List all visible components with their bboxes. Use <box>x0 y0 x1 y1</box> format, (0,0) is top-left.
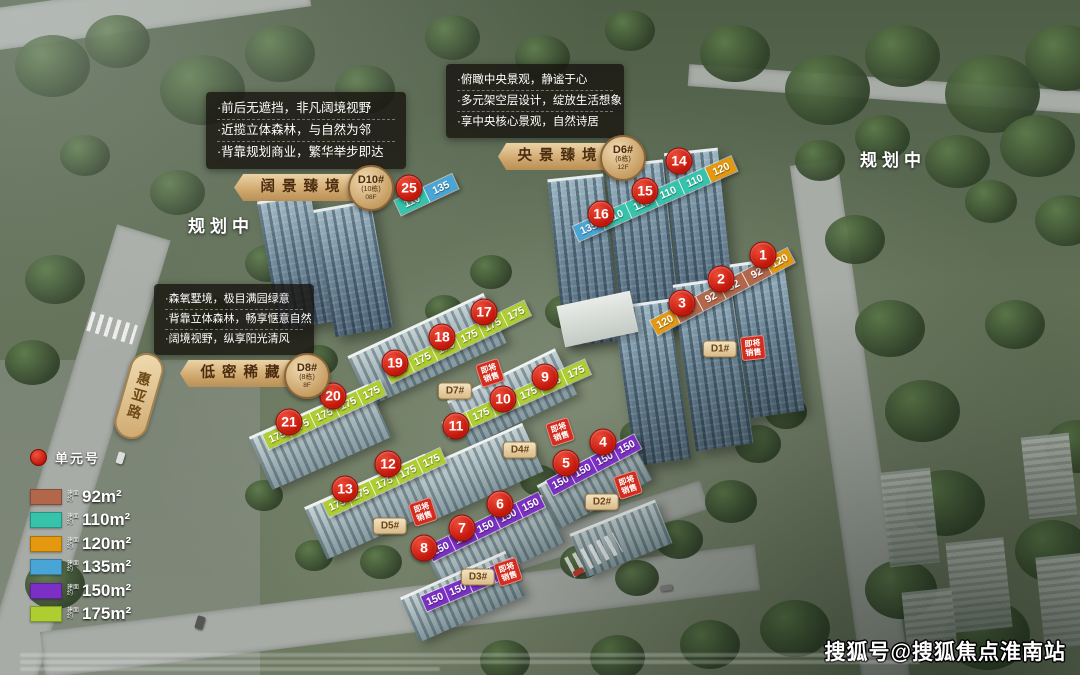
coming-soon-tag: 即将销售 <box>475 358 505 388</box>
info-card-bullet-list: ·森氧墅境，极目满园绿意 ·背靠立体森林，畅享惬意自然 ·阔境视野，纵享阳光清风 <box>154 284 314 355</box>
area-tile-175: 175 <box>357 380 386 405</box>
badge-code: D8# <box>297 363 317 374</box>
area-tile-120: 120 <box>705 156 737 182</box>
info-card-bullet-list: ·俯瞰中央景观，静谧于心 ·多元架空层设计，绽放生活想象 ·享中央核心景观，自然… <box>446 64 624 138</box>
coming-soon-tag: 即将销售 <box>545 417 575 447</box>
disclaimer-line <box>20 653 880 657</box>
legend-item-120: 建面约120m² <box>30 532 131 556</box>
banner-label: 阔景臻境 <box>234 174 366 201</box>
bullet-line: ·前后无遮挡，非凡阔境视野 <box>217 98 395 119</box>
banner-group: 低密稀藏 D8# (8栋) 8F <box>180 360 300 387</box>
unit-number-badge-17: 17 <box>471 299 498 326</box>
legend-unit-marker: 单元号 <box>30 448 131 467</box>
badge-subtitle: (10栋) <box>361 186 380 194</box>
area-tile-135: 135 <box>424 174 459 202</box>
legend-area-label: 110m² <box>82 510 130 530</box>
legend-item-135: 建面约135m² <box>30 556 131 580</box>
unit-number-badge-11: 11 <box>443 413 470 440</box>
building-label-pill: D1# <box>703 341 737 358</box>
banner-label: 央景臻境 <box>498 143 616 170</box>
building-badge-d8: D8# (8栋) 8F <box>284 353 330 399</box>
coming-soon-tag: 即将销售 <box>408 497 438 527</box>
legend-unit-label: 单元号 <box>55 448 100 467</box>
bullet-line: ·多元架空层设计，绽放生活想象 <box>457 90 613 111</box>
area-tile-150: 150 <box>516 492 545 517</box>
area-tile-175: 175 <box>562 360 591 385</box>
unit-number-badge-21: 21 <box>276 409 303 436</box>
unit-number-badge-8: 8 <box>411 535 438 562</box>
legend: 单元号 建面约92m²建面约110m²建面约120m²建面约135m²建面约15… <box>30 448 131 626</box>
area-tile-175: 175 <box>501 301 530 326</box>
unit-number-badge-9: 9 <box>532 364 559 391</box>
legend-swatch <box>30 536 62 552</box>
unit-number-badge-3: 3 <box>669 290 696 317</box>
badge-code: D10# <box>358 175 384 186</box>
info-card-broad-view: ·前后无遮挡，非凡阔境视野 ·近揽立体森林，与自然为邻 ·背靠规划商业，繁华举步… <box>206 92 406 201</box>
bullet-line: ·阔境视野，纵享阳光清风 <box>165 329 303 349</box>
unit-number-badge-5: 5 <box>553 450 580 477</box>
bullet-line: ·森氧墅境，极目满园绿意 <box>165 290 303 309</box>
legend-area-label: 92m² <box>82 487 122 507</box>
badge-subtitle: (6栋) <box>615 156 631 164</box>
legend-prefix: 建面约 <box>67 538 79 550</box>
building-label-pill: D5# <box>373 518 407 535</box>
legend-swatch <box>30 512 62 528</box>
legend-prefix: 建面约 <box>67 585 79 597</box>
legend-swatch <box>30 559 62 575</box>
badge-code: D6# <box>613 145 633 156</box>
info-card-central-view: ·俯瞰中央景观，静谧于心 ·多元架空层设计，绽放生活想象 ·享中央核心景观，自然… <box>446 64 624 170</box>
unit-number-badge-4: 4 <box>590 429 617 456</box>
badge-floor: 08F <box>365 194 376 201</box>
info-card-bullet-list: ·前后无遮挡，非凡阔境视野 ·近揽立体森林，与自然为邻 ·背靠规划商业，繁华举步… <box>206 92 406 169</box>
legend-rows: 建面约92m²建面约110m²建面约120m²建面约135m²建面约150m²建… <box>30 485 131 626</box>
building-label-pill: D2# <box>585 494 619 511</box>
bullet-line: ·近揽立体森林，与自然为邻 <box>217 119 395 141</box>
legend-prefix: 建面约 <box>67 491 79 503</box>
legend-swatch <box>30 583 62 599</box>
info-card-low-density: ·森氧墅境，极目满园绿意 ·背靠立体森林，畅享惬意自然 ·阔境视野，纵享阳光清风… <box>154 284 314 387</box>
unit-number-dot-icon <box>30 449 47 466</box>
planning-label-left: 规划中 <box>188 212 254 237</box>
building-label-pill: D3# <box>461 569 495 586</box>
unit-number-badge-14: 14 <box>666 148 693 175</box>
unit-number-badge-1: 1 <box>750 242 777 269</box>
legend-area-label: 120m² <box>82 534 131 554</box>
coming-soon-tag: 即将销售 <box>740 335 766 361</box>
unit-number-badge-12: 12 <box>375 451 402 478</box>
unit-number-badge-2: 2 <box>708 266 735 293</box>
unit-number-badge-10: 10 <box>490 386 517 413</box>
legend-swatch <box>30 606 62 622</box>
building-label-pill: D7# <box>438 383 472 400</box>
coming-soon-tag: 即将销售 <box>493 557 523 587</box>
unit-number-badge-18: 18 <box>429 324 456 351</box>
banner-group: 央景臻境 D6# (6栋) 12F <box>498 143 616 170</box>
banner-group: 阔景臻境 D10# (10栋) 08F <box>234 174 366 201</box>
legend-item-175: 建面约175m² <box>30 603 131 627</box>
unit-number-badge-16: 16 <box>588 201 615 228</box>
badge-subtitle: (8栋) <box>299 374 315 382</box>
unit-number-badge-19: 19 <box>382 350 409 377</box>
unit-number-badge-13: 13 <box>332 476 359 503</box>
bullet-line: ·背靠规划商业，繁华举步即达 <box>217 141 395 163</box>
disclaimer-line <box>20 660 920 664</box>
legend-area-label: 150m² <box>82 581 131 601</box>
unit-number-badge-15: 15 <box>632 178 659 205</box>
banner-label: 低密稀藏 <box>180 360 300 387</box>
building-badge-d6: D6# (6栋) 12F <box>600 135 646 181</box>
badge-floor: 12F <box>617 164 628 171</box>
building-badge-d10: D10# (10栋) 08F <box>348 165 394 211</box>
legend-prefix: 建面约 <box>67 608 79 620</box>
legend-area-label: 175m² <box>82 604 131 624</box>
bullet-line: ·俯瞰中央景观，静谧于心 <box>457 70 613 90</box>
legend-prefix: 建面约 <box>67 514 79 526</box>
site-plan-rendering: ·前后无遮挡，非凡阔境视野 ·近揽立体森林，与自然为邻 ·背靠规划商业，繁华举步… <box>0 0 1080 675</box>
bullet-line: ·享中央核心景观，自然诗居 <box>457 111 613 132</box>
legend-item-150: 建面约150m² <box>30 579 131 603</box>
badge-floor: 8F <box>303 382 311 389</box>
unit-number-badge-7: 7 <box>449 515 476 542</box>
legend-area-label: 135m² <box>82 557 131 577</box>
legend-swatch <box>30 489 62 505</box>
unit-number-badge-6: 6 <box>487 491 514 518</box>
legend-item-110: 建面约110m² <box>30 509 131 533</box>
legend-prefix: 建面约 <box>67 561 79 573</box>
legend-item-92: 建面约92m² <box>30 485 131 509</box>
planning-label-right: 规划中 <box>860 146 926 171</box>
bullet-line: ·背靠立体森林，畅享惬意自然 <box>165 309 303 329</box>
unit-area-strip: 175175175175175175 <box>384 301 530 383</box>
area-tile-175: 175 <box>417 448 446 473</box>
disclaimer-line <box>20 667 440 671</box>
building-label-pill: D4# <box>503 442 537 459</box>
